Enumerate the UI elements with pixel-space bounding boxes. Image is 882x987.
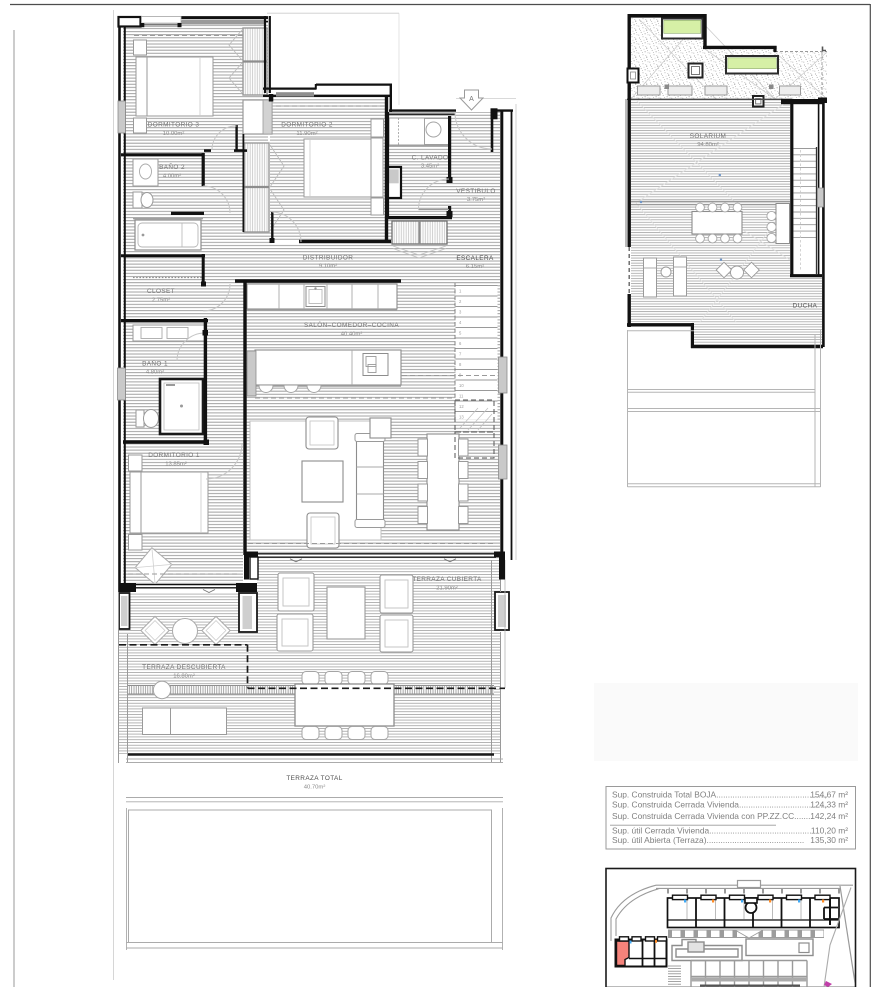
svg-text:12: 12 — [459, 404, 464, 409]
svg-text:4.80m²: 4.80m² — [146, 370, 164, 376]
svg-text:3.75m²: 3.75m² — [467, 197, 485, 203]
svg-text:Sup. Construida Cerrada Vivien: Sup. Construida Cerrada Vivienda con PP.… — [612, 811, 813, 821]
svg-text:Sup. Construida Cerrada Vivien: Sup. Construida Cerrada Vivienda........… — [612, 800, 827, 810]
svg-text:DISTRIBUIDOR: DISTRIBUIDOR — [303, 255, 354, 262]
svg-text:Sup. útil Cerrada Vivienda....: Sup. útil Cerrada Vivienda..............… — [612, 826, 812, 836]
svg-text:CLOSET: CLOSET — [147, 288, 175, 295]
svg-text:BAÑO 2: BAÑO 2 — [159, 162, 185, 171]
svg-text:ESCALERA: ESCALERA — [456, 255, 494, 262]
svg-text:4.00m²: 4.00m² — [163, 174, 181, 180]
svg-text:2.75m²: 2.75m² — [152, 298, 170, 304]
svg-text:154,67 m²: 154,67 m² — [810, 790, 848, 800]
svg-text:SALÓN–COMEDOR–COCINA: SALÓN–COMEDOR–COCINA — [304, 320, 399, 329]
svg-text:Sup. útil Abierta (Terraza)...: Sup. útil Abierta (Terraza).............… — [612, 835, 804, 845]
svg-text:TERRAZA TOTAL: TERRAZA TOTAL — [286, 775, 342, 782]
svg-text:10.00m²: 10.00m² — [163, 131, 185, 137]
svg-text:TERRAZA DESCUBIERTA: TERRAZA DESCUBIERTA — [142, 664, 226, 671]
svg-text:13.85m²: 13.85m² — [165, 462, 187, 468]
svg-text:10: 10 — [459, 383, 464, 388]
svg-text:Sup. Construida Total BOJA....: Sup. Construida Total BOJA..............… — [612, 790, 828, 800]
svg-text:6.15m²: 6.15m² — [466, 264, 484, 270]
svg-text:13: 13 — [459, 415, 464, 420]
svg-text:BAÑO 1: BAÑO 1 — [142, 359, 168, 368]
svg-text:C. LAVADO: C. LAVADO — [412, 155, 449, 162]
svg-text:40.40m²: 40.40m² — [341, 332, 363, 338]
svg-text:DUCHA: DUCHA — [793, 303, 818, 310]
svg-text:9.10m²: 9.10m² — [319, 264, 337, 270]
svg-text:21.90m²: 21.90m² — [436, 586, 458, 592]
svg-text:DORMITORIO 1: DORMITORIO 1 — [148, 452, 200, 459]
svg-text:142,24 m²: 142,24 m² — [810, 811, 848, 821]
svg-text:A: A — [469, 96, 474, 103]
svg-text:3.45m²: 3.45m² — [421, 164, 439, 170]
svg-text:16.80m²: 16.80m² — [173, 674, 195, 680]
svg-text:DORMITORIO 2: DORMITORIO 2 — [281, 122, 333, 129]
svg-text:94.80m²: 94.80m² — [697, 142, 719, 148]
svg-text:110,20 m²: 110,20 m² — [811, 826, 848, 836]
svg-text:DORMITORIO 3: DORMITORIO 3 — [148, 122, 200, 129]
svg-text:SOLARIUM: SOLARIUM — [690, 133, 727, 140]
svg-text:11.90m²: 11.90m² — [296, 131, 317, 137]
svg-text:TERRAZA CUBIERTA: TERRAZA CUBIERTA — [412, 576, 482, 583]
svg-text:40.70m²: 40.70m² — [304, 785, 326, 791]
svg-text:VESTIBULO: VESTIBULO — [456, 188, 495, 195]
svg-text:135,30 m²: 135,30 m² — [810, 835, 848, 845]
svg-text:11: 11 — [459, 394, 464, 399]
svg-text:124,33 m²: 124,33 m² — [810, 800, 848, 810]
